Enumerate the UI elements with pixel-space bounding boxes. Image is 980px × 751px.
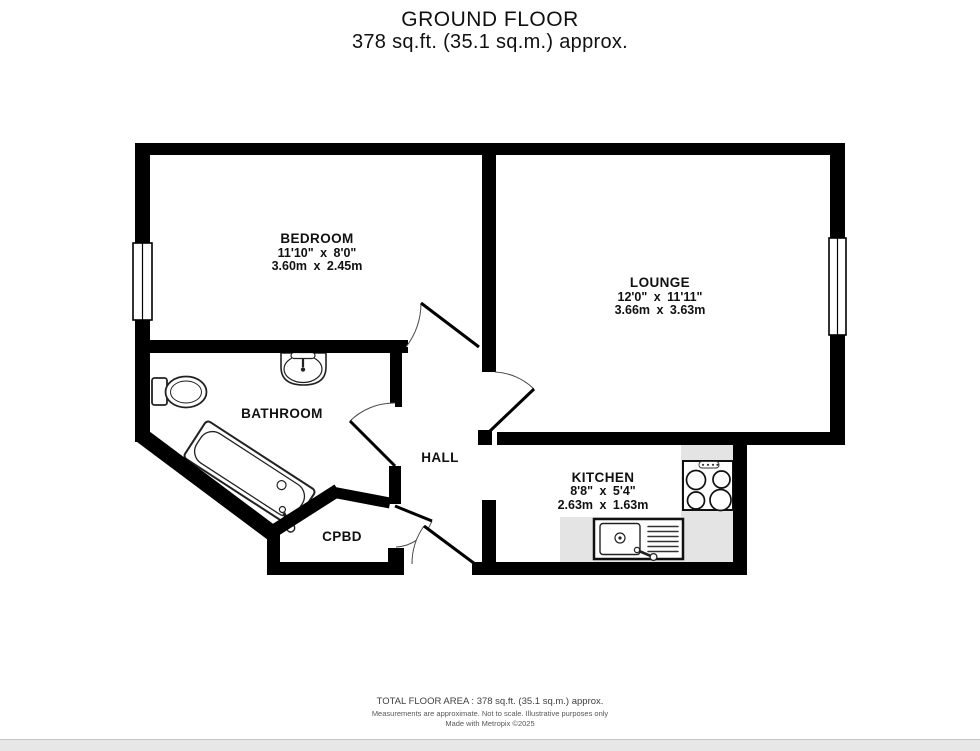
window-lounge [829,238,846,335]
credit-text: Made with Metropix ©2025 [0,719,980,728]
bedroom-label: BEDROOM [280,231,353,246]
hall-label: HALL [421,450,459,465]
window-bedroom [133,243,152,320]
bedroom-size-imperial: 11'10" x 8'0" [278,246,357,260]
bedroom-door [406,303,479,347]
wall-bedroom-bottom [135,340,408,353]
wall-cpbd-top [332,492,390,503]
bedroom-size-metric: 3.60m x 2.45m [272,259,363,273]
bathroom-sink-icon [281,353,326,386]
wall-left-lower [135,320,150,442]
kitchen-label: KITCHEN [572,470,635,485]
bathroom-label: BATHROOM [241,406,323,421]
toilet-icon [152,377,207,408]
lounge-size-imperial: 12'0" x 11'11" [618,290,703,304]
wall-cpbd-bottom [267,562,403,575]
wall-lounge-bottom [497,432,845,445]
wall-hall-kitchen-stub [482,500,496,562]
plan-footer: TOTAL FLOOR AREA : 378 sq.ft. (35.1 sq.m… [0,696,980,728]
wall-divider-cap [478,430,492,445]
wall-right-upper [830,143,845,238]
cooker-icon [683,461,733,511]
bathroom-door [350,403,395,466]
walls [135,143,845,575]
wall-stub-bathroom-top [390,353,402,407]
cupboard-label: CPBD [322,529,362,544]
page-bottom-edge [0,739,980,751]
floorplan-drawing: BEDROOM 11'10" x 8'0" 3.60m x 2.45m LOUN… [0,0,980,751]
disclaimer-text: Measurements are approximate. Not to sca… [0,709,980,718]
total-floor-area: TOTAL FLOOR AREA : 378 sq.ft. (35.1 sq.m… [0,696,980,707]
kitchen-size-imperial: 8'8" x 5'4" [570,484,636,498]
wall-right-lower [830,335,845,445]
wall-left-upper [135,143,150,243]
kitchen-size-metric: 2.63m x 1.63m [558,498,649,512]
wall-bottom-right [472,562,747,575]
wall-bedroom-lounge-divider [482,143,496,372]
lounge-label: LOUNGE [630,275,690,290]
floorplan-page: GROUND FLOOR 378 sq.ft. (35.1 sq.m.) app… [0,0,980,751]
wall-kitchen-right [733,445,747,575]
kitchen-sink-icon [594,519,683,560]
lounge-size-metric: 3.66m x 3.63m [615,303,706,317]
lounge-door [490,372,534,431]
entrance-door [412,526,475,564]
